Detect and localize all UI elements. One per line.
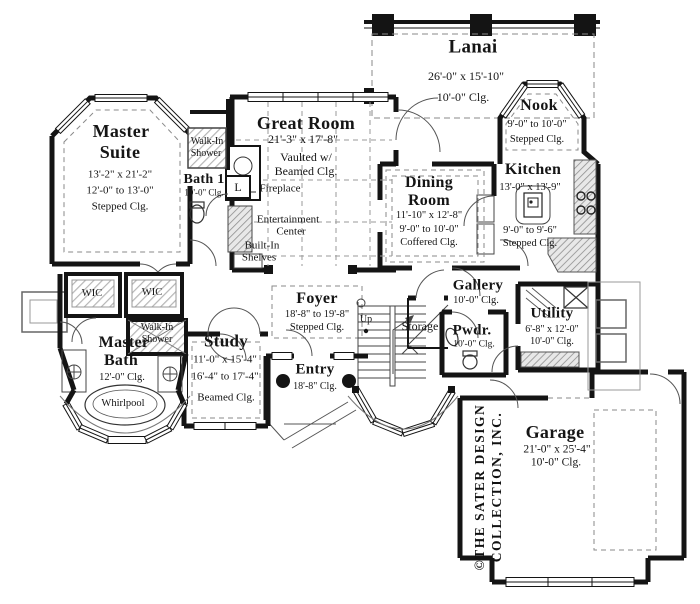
study-label: Study (204, 333, 248, 350)
designer-copyright-line-1: ©THE SATER DESIGN (472, 404, 489, 571)
stairs-up-label: Up (360, 315, 372, 325)
kitchen-label: Kitchen (505, 162, 561, 178)
master-bath-clg: 12'-0" Clg. (99, 373, 145, 384)
entertainment-label-2: Center (276, 227, 305, 238)
shelves-label-1: Built-In (245, 241, 280, 252)
designer-copyright-line-2: COLLECTION, INC. (489, 404, 506, 571)
great-room-clg-2: Beamed Clg. (275, 165, 338, 177)
dining-clg-2: Coffered Clg. (400, 238, 458, 249)
wic-right-label: WIC (142, 288, 162, 299)
great-room-dims: 21'-3" x 17'-8" (268, 133, 338, 145)
bath1-clg: 10'-0" Clg. (184, 189, 223, 198)
entry-label: Entry (296, 363, 335, 378)
entertainment-label-1: Entertainment (257, 215, 319, 226)
study-structure (181, 308, 269, 430)
master-bath-label-2: Bath (104, 353, 138, 369)
entry-column (276, 374, 290, 388)
master-suite-label-2: Suite (100, 143, 141, 161)
foyer-clg: Stepped Clg. (290, 323, 344, 334)
lanai-dims: 26'-0" x 15'-10" (428, 70, 504, 82)
lanai-column (470, 14, 492, 36)
bath1-label: Bath 1 (183, 173, 224, 187)
bath1-shower-label-2: Shower (191, 149, 222, 159)
cabinet-icon (477, 224, 494, 254)
wic-left-label: WIC (82, 289, 102, 300)
great-room-label: Great Room (257, 114, 355, 132)
garage-label: Garage (526, 423, 585, 441)
pwdr-clg: 10'-0" Clg. (453, 340, 494, 350)
oven-icon (524, 193, 542, 217)
gallery-label: Gallery (453, 279, 503, 294)
study-clg-1: 16'-4" to 17'-4" (191, 372, 258, 383)
lanai-column (574, 14, 596, 36)
garage-dims: 21'-0" x 25'-4" (523, 444, 590, 456)
stair-bay-structure (348, 386, 458, 436)
shelves-label-2: Shelves (242, 253, 276, 264)
dining-clg-1: 9'-0" to 10'-0" (399, 225, 458, 236)
garage-clg: 10'-0" Clg. (531, 457, 581, 469)
dining-label-1: Dining (405, 175, 453, 191)
fireplace-label: Fireplace (260, 184, 301, 195)
study-clg-2: Beamed Clg. (197, 393, 254, 404)
master-suite-label-1: Master (93, 122, 150, 140)
gallery-clg: 10'-0" Clg. (453, 296, 499, 307)
study-dims: 11'-0" x 15'-4" (193, 355, 257, 366)
storage-label: Storage (402, 320, 439, 332)
foyer-label: Foyer (296, 291, 337, 307)
bath1-shower-label-1: Walk-In (191, 137, 224, 147)
kitchen-dims: 13'-0" x 13'-9" (499, 183, 560, 194)
utility-label: Utility (531, 307, 574, 322)
lanai-column (372, 14, 394, 36)
toilet-icon (463, 351, 477, 369)
master-shower-label-1: Walk-In (141, 323, 174, 333)
linen-label: L (234, 181, 241, 193)
nook-dims: 9'-0" to 10'-0" (507, 120, 566, 131)
entry-column (342, 374, 356, 388)
master-bath-label-1: Master (99, 335, 150, 351)
nook-label: Nook (520, 98, 558, 114)
lanai-clg: 10'-0" Clg. (437, 91, 489, 103)
great-room-clg-1: Vaulted w/ (280, 151, 332, 163)
kitchen-clg-1: 9'-0" to 9'-6" (503, 226, 557, 237)
utility-clg: 10'-0" Clg. (530, 337, 574, 347)
entry-clg: 18'-8" Clg. (293, 382, 337, 392)
master-suite-clg-2: Stepped Clg. (92, 202, 149, 213)
floor-plan: Lanai 26'-0" x 15'-10" 10'-0" Clg. Nook … (0, 0, 700, 604)
lanai-label: Lanai (448, 38, 497, 57)
foyer-dims: 18'-8" to 19'-8" (285, 310, 349, 321)
designer-copyright: ©THE SATER DESIGN COLLECTION, INC. (472, 404, 506, 571)
master-suite-clg-1: 12'-0" to 13'-0" (86, 186, 153, 197)
utility-counter-icon (521, 352, 579, 367)
dining-dims: 11'-10" x 12'-8" (396, 211, 462, 222)
floor-plan-drawing (0, 0, 700, 604)
master-suite-dims: 13'-2" x 21'-2" (88, 170, 152, 181)
whirlpool-label: Whirlpool (101, 399, 144, 410)
pwdr-label: Pwdr. (453, 324, 492, 339)
dining-label-2: Room (408, 193, 450, 209)
kitchen-clg-2: Stepped Clg. (503, 239, 557, 250)
nook-clg: Stepped Clg. (510, 135, 564, 146)
utility-dims: 6'-8" x 12'-0" (525, 325, 578, 335)
